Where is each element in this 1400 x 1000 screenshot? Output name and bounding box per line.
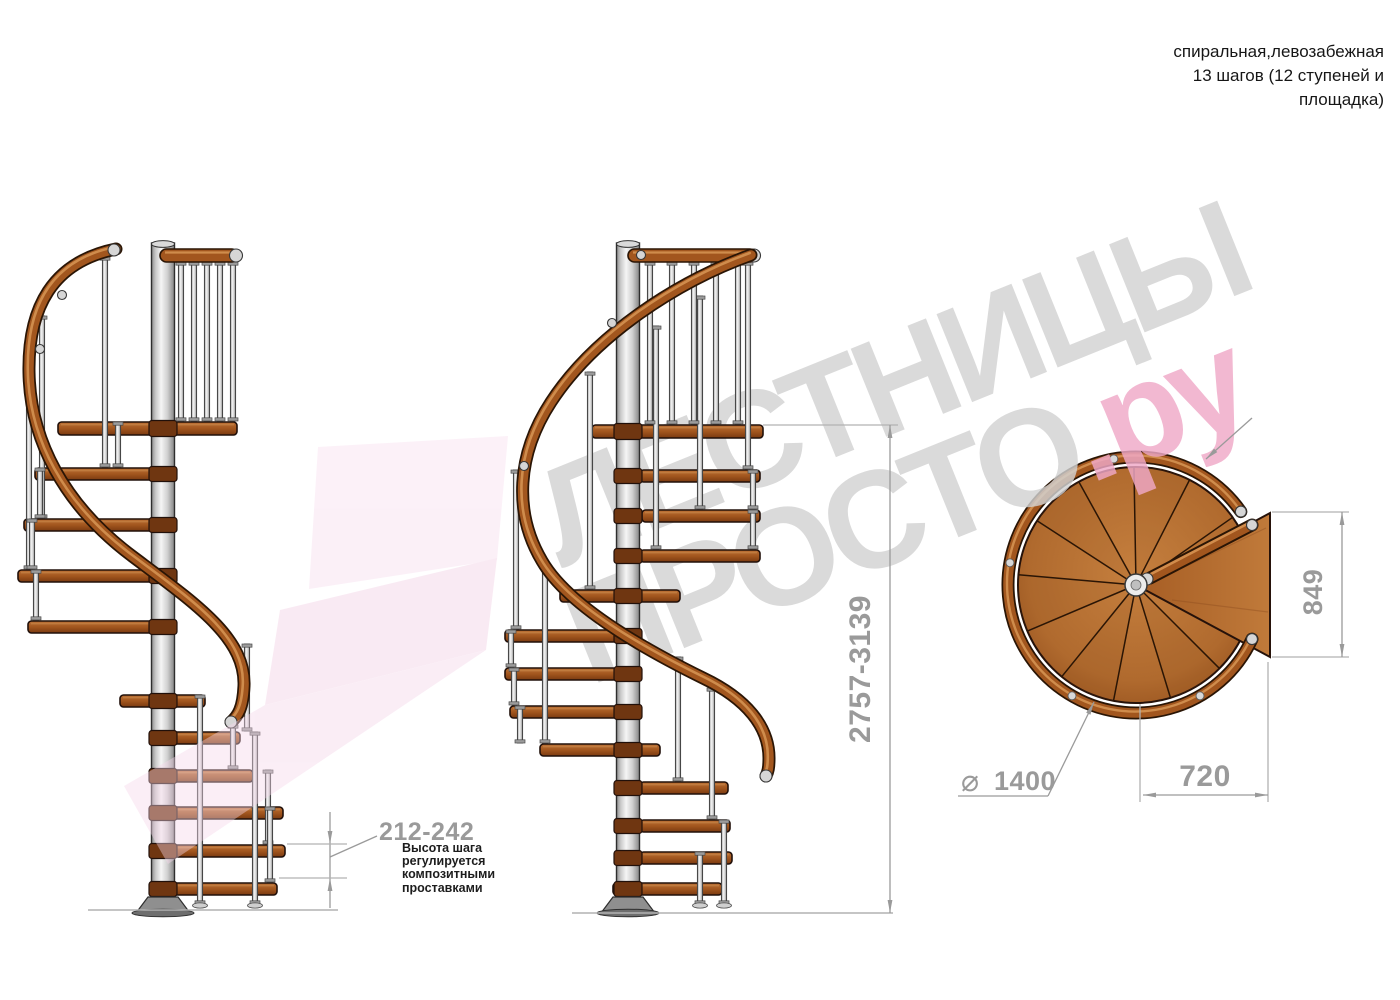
center-pole <box>617 243 640 912</box>
stair-step <box>640 820 730 832</box>
watermark-arrow <box>124 436 508 864</box>
baluster <box>542 565 547 743</box>
stair-step <box>505 630 617 642</box>
drawing-stage: ЛЕСТНИЦЫ ПРОСТО.ру 2757-3139 849 720 ⌀ 1… <box>0 0 1400 1000</box>
baluster <box>267 807 272 882</box>
dim-platform-width: 720 <box>1179 760 1231 793</box>
baluster <box>675 657 680 781</box>
diameter-symbol: ⌀ <box>961 765 979 798</box>
baluster <box>697 296 702 509</box>
top-handrail <box>160 249 238 262</box>
stair-step <box>642 510 760 522</box>
stair-step <box>505 668 617 680</box>
dim-diameter: 1400 <box>994 766 1056 796</box>
note-line-3: композитными <box>402 868 532 881</box>
title-line-2: 13 шагов (12 ступеней и <box>964 64 1384 88</box>
baluster <box>745 262 750 469</box>
baluster <box>102 257 107 467</box>
baluster <box>709 688 714 819</box>
stair-step <box>640 852 732 864</box>
baluster <box>511 668 516 705</box>
baluster <box>735 262 740 424</box>
baluster <box>37 468 42 518</box>
baluster <box>178 262 183 421</box>
baluster <box>750 470 755 509</box>
title-line-3: площадка) <box>964 88 1384 112</box>
dim-total-height: 2757-3139 <box>844 595 877 743</box>
stair-step <box>510 706 617 718</box>
stair-step <box>640 550 760 562</box>
baluster <box>517 706 522 743</box>
baluster <box>697 852 702 904</box>
baluster <box>653 326 658 549</box>
dim-platform-depth: 849 <box>1298 569 1328 616</box>
baluster <box>230 262 235 421</box>
baluster <box>33 570 38 620</box>
baluster <box>191 262 196 421</box>
baluster <box>115 422 120 467</box>
baluster <box>204 262 209 421</box>
title-line-1: спиральная,левозабежная <box>964 40 1384 64</box>
baluster <box>721 820 726 904</box>
baluster <box>29 519 34 569</box>
baluster <box>713 262 718 424</box>
step-height-note: Высота шага регулируется композитными пр… <box>402 842 532 895</box>
baluster <box>217 262 222 421</box>
baluster <box>647 262 652 424</box>
baluster <box>508 630 513 667</box>
note-line-4: проставками <box>402 882 532 895</box>
title-block: спиральная,левозабежная 13 шагов (12 сту… <box>964 40 1384 112</box>
baluster <box>750 510 755 549</box>
staircase-drawing: ЛЕСТНИЦЫ ПРОСТО.ру 2757-3139 849 720 ⌀ 1… <box>0 0 1400 1000</box>
baluster <box>587 372 592 589</box>
